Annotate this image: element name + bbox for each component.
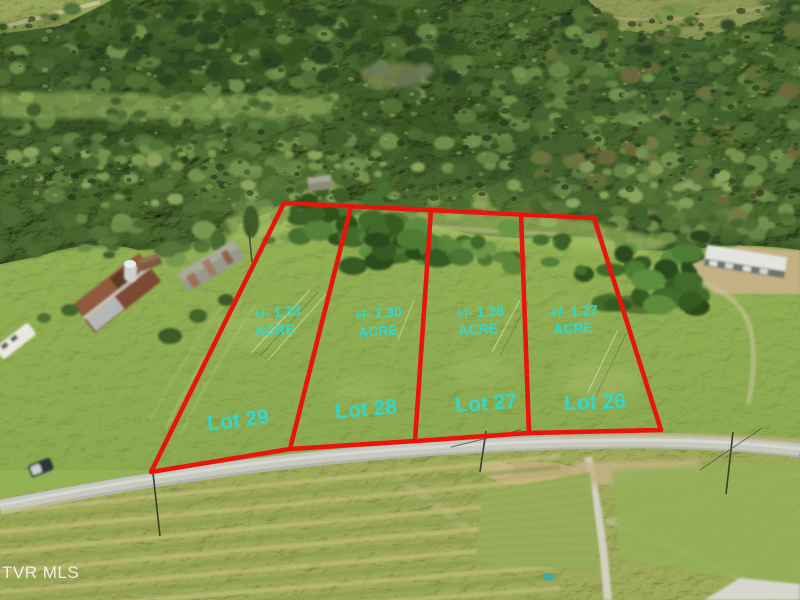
svg-text:Lot 26: Lot 26 [564, 390, 627, 415]
svg-text:+/- 1.28: +/- 1.28 [456, 303, 505, 321]
svg-text:Lot 27: Lot 27 [454, 390, 517, 417]
svg-text:ACRE: ACRE [358, 322, 399, 341]
svg-text:ACRE: ACRE [553, 319, 593, 337]
svg-text:ACRE: ACRE [255, 321, 296, 340]
svg-text:TVR MLS: TVR MLS [2, 563, 79, 582]
svg-text:+/- 1.27: +/- 1.27 [550, 302, 599, 320]
svg-text:+/- 1.33: +/- 1.33 [252, 302, 301, 321]
svg-text:ACRE: ACRE [458, 320, 498, 338]
svg-text:+/- 1.30: +/- 1.30 [353, 303, 402, 322]
